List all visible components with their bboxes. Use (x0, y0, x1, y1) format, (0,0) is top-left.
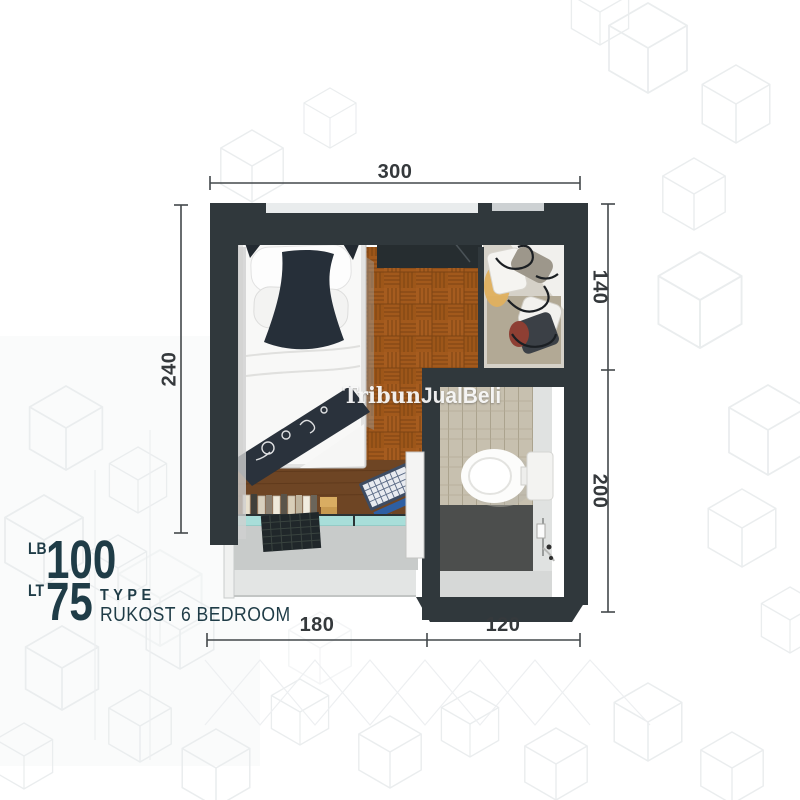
bathroom-dark-floor (440, 505, 533, 571)
wall-left (210, 203, 238, 545)
tan-book-stack (320, 497, 337, 507)
dim-top: 300 (378, 161, 413, 183)
toilet (461, 449, 553, 507)
dim-bottom-left: 180 (300, 614, 335, 636)
watermark-jualbeli: JualBeli (421, 383, 501, 408)
wall-closet-edge (478, 247, 484, 368)
dim-right-upper: 140 (589, 270, 611, 305)
doormat-grate (261, 512, 321, 552)
lt-label: LT (28, 581, 44, 601)
balcony-slab (232, 526, 418, 570)
watermark: TribunJualBeli (343, 383, 501, 409)
floorplan-advert-image: 300 240 140 200 180 120 TribunJualBeli L… (0, 0, 800, 800)
bathroom-door-leaf (406, 452, 424, 558)
lt-value: 75 (46, 575, 93, 629)
balcony (224, 512, 422, 598)
wall-right (564, 203, 588, 605)
dim-left: 240 (158, 352, 180, 387)
glass-window (230, 515, 422, 526)
bathroom (440, 386, 554, 606)
wall-top-light-strip (266, 203, 478, 213)
type-label: TYPE (100, 587, 156, 605)
bed (230, 220, 374, 486)
watermark-tribun: Tribun (343, 383, 421, 409)
dim-bottom-right: 120 (486, 614, 521, 636)
dim-right-lower: 200 (589, 474, 611, 509)
lb-label: LB (28, 539, 47, 559)
type-name: RUKOST 6 BEDROOM (100, 604, 291, 627)
wardrobe-area (483, 230, 566, 368)
